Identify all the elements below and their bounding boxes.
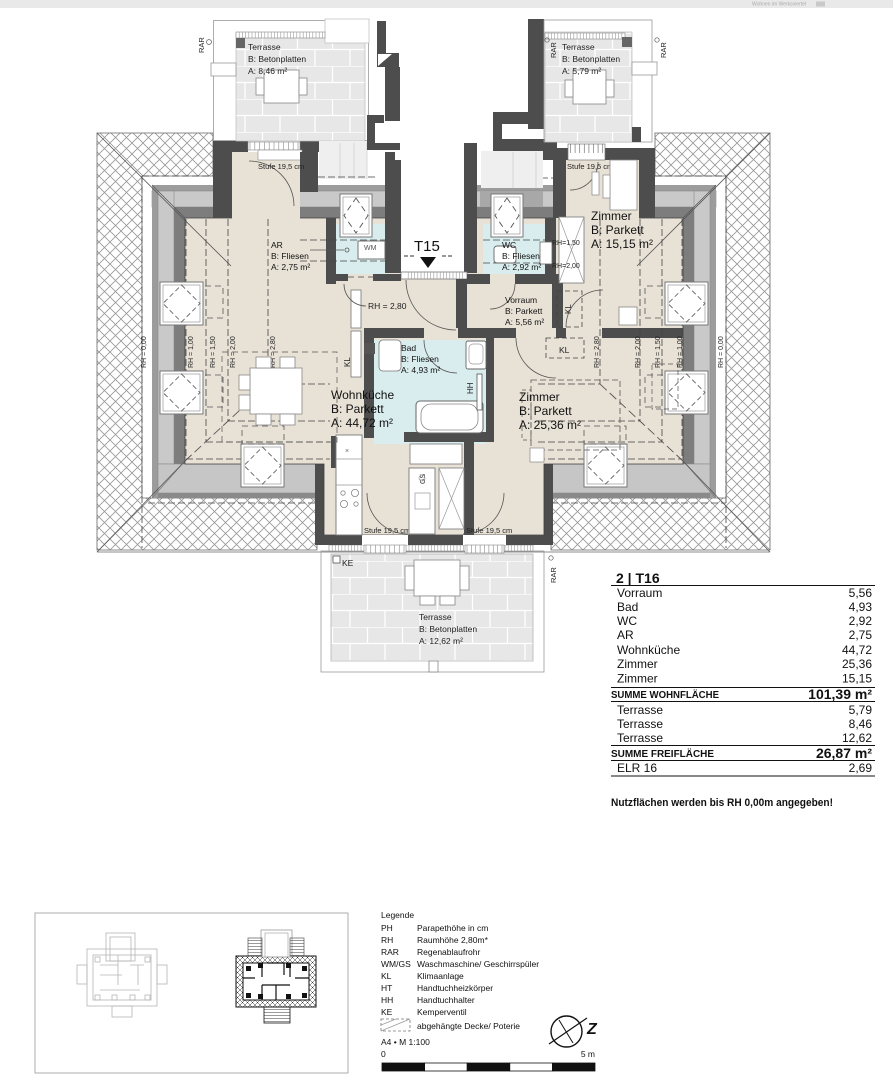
svg-text:RH = 0,00: RH = 0,00 <box>141 336 148 368</box>
svg-text:RH = 2,00: RH = 2,00 <box>635 336 642 368</box>
svg-text:Raumhöhe 2,80m*: Raumhöhe 2,80m* <box>417 935 489 945</box>
svg-text:HT: HT <box>381 983 392 993</box>
svg-text:Terrasse: Terrasse <box>562 42 595 52</box>
svg-text:Bad: Bad <box>617 600 638 614</box>
svg-text:Terrasse: Terrasse <box>617 731 663 745</box>
svg-text:Zimmer: Zimmer <box>519 390 560 404</box>
svg-text:WM: WM <box>364 245 377 252</box>
svg-text:A: 25,36 m²: A: 25,36 m² <box>519 418 581 432</box>
svg-text:A: 44,72 m²: A: 44,72 m² <box>331 416 393 430</box>
svg-text:B: Betonplatten: B: Betonplatten <box>562 54 620 64</box>
svg-text:44,72: 44,72 <box>842 643 872 657</box>
svg-text:KE: KE <box>381 1007 393 1017</box>
svg-text:Kemperventil: Kemperventil <box>417 1007 467 1017</box>
svg-text:2,92: 2,92 <box>849 614 873 628</box>
svg-text:KL: KL <box>381 971 392 981</box>
svg-text:Stufe 19,5 cm: Stufe 19,5 cm <box>567 162 613 171</box>
svg-text:2 | T16: 2 | T16 <box>616 570 660 586</box>
svg-text:RH = 1,50: RH = 1,50 <box>655 336 662 368</box>
svg-text:Waschmaschine/ Geschirrspüler: Waschmaschine/ Geschirrspüler <box>417 959 539 969</box>
svg-text:Terrasse: Terrasse <box>617 703 663 717</box>
svg-text:8,46: 8,46 <box>849 717 873 731</box>
svg-text:2,69: 2,69 <box>849 761 873 775</box>
svg-text:RH=2,00: RH=2,00 <box>552 263 580 270</box>
svg-text:RAR: RAR <box>659 42 668 58</box>
svg-text:5 m: 5 m <box>581 1049 595 1059</box>
svg-text:SUMME WOHNFLÄCHE: SUMME WOHNFLÄCHE <box>611 688 719 701</box>
svg-text:101,39 m²: 101,39 m² <box>808 686 872 702</box>
svg-text:Zimmer: Zimmer <box>617 672 658 686</box>
svg-text:15,15: 15,15 <box>842 672 872 686</box>
svg-text:RH = 2,80: RH = 2,80 <box>368 301 407 311</box>
svg-text:B: Parkett: B: Parkett <box>591 223 644 237</box>
svg-text:Klimaanlage: Klimaanlage <box>417 971 464 981</box>
svg-text:RH = 0,00: RH = 0,00 <box>718 336 725 368</box>
svg-text:KL: KL <box>343 357 352 367</box>
svg-text:Bad: Bad <box>401 343 416 353</box>
svg-text:WC: WC <box>502 240 516 250</box>
svg-text:RH = 2,80: RH = 2,80 <box>594 336 601 368</box>
svg-text:Terrasse: Terrasse <box>617 717 663 731</box>
svg-text:WC: WC <box>617 614 637 628</box>
svg-text:AR: AR <box>617 628 634 642</box>
svg-text:5,56: 5,56 <box>849 586 873 600</box>
svg-text:Stufe 19,5 cm: Stufe 19,5 cm <box>258 162 304 171</box>
svg-text:B: Parkett: B: Parkett <box>519 404 572 418</box>
svg-text:Wohnen im Werksviertel: Wohnen im Werksviertel <box>752 2 806 8</box>
svg-text:5,79: 5,79 <box>849 703 873 717</box>
svg-text:RH=1,50: RH=1,50 <box>552 240 580 247</box>
svg-text:RAR: RAR <box>549 567 558 583</box>
svg-text:ELR 16: ELR 16 <box>617 761 657 775</box>
svg-text:Z: Z <box>586 1021 598 1038</box>
svg-text:12,62: 12,62 <box>842 731 872 745</box>
svg-text:A: 12,62 m²: A: 12,62 m² <box>419 636 463 646</box>
svg-text:RAR: RAR <box>197 37 206 53</box>
svg-text:HH: HH <box>466 382 475 394</box>
svg-text:A: 5,79 m²: A: 5,79 m² <box>562 66 601 76</box>
svg-text:RAR: RAR <box>381 947 399 957</box>
svg-text:0: 0 <box>381 1049 386 1059</box>
svg-text:B: Fliesen: B: Fliesen <box>271 251 309 261</box>
svg-text:Vorraum: Vorraum <box>505 295 537 305</box>
svg-text:2,75: 2,75 <box>849 628 873 642</box>
svg-text:WM/GS: WM/GS <box>381 959 411 969</box>
svg-text:A4 • M 1:100: A4 • M 1:100 <box>381 1037 430 1047</box>
svg-text:Regenablaufrohr: Regenablaufrohr <box>417 947 480 957</box>
svg-text:Handtuchheizkörper: Handtuchheizkörper <box>417 983 493 993</box>
svg-text:Zimmer: Zimmer <box>591 209 632 223</box>
svg-text:B: Betonplatten: B: Betonplatten <box>248 54 306 64</box>
svg-text:Nutzflächen werden bis RH 0,00: Nutzflächen werden bis RH 0,00m angegebe… <box>611 797 833 809</box>
svg-text:RH: RH <box>381 935 393 945</box>
svg-text:Wohnküche: Wohnküche <box>331 388 394 402</box>
svg-text:Terrasse: Terrasse <box>248 42 281 52</box>
svg-text:Stufe 19,5 cm: Stufe 19,5 cm <box>466 526 512 535</box>
svg-text:T15: T15 <box>414 238 440 255</box>
svg-text:B: Parkett: B: Parkett <box>331 402 384 416</box>
svg-text:Terrasse: Terrasse <box>419 612 452 622</box>
svg-text:RAR: RAR <box>549 42 558 58</box>
svg-text:Parapethöhe in cm: Parapethöhe in cm <box>417 923 488 933</box>
svg-text:RH = 1,00: RH = 1,00 <box>677 336 684 368</box>
svg-text:RH = 1,50: RH = 1,50 <box>210 336 217 368</box>
svg-text:Wohnküche: Wohnküche <box>617 643 680 657</box>
svg-text:AR: AR <box>271 240 283 250</box>
svg-text:Zimmer: Zimmer <box>617 657 658 671</box>
svg-text:A: 4,93 m²: A: 4,93 m² <box>401 365 440 375</box>
svg-text:KE: KE <box>342 558 354 568</box>
svg-text:A: 2,75 m²: A: 2,75 m² <box>271 262 310 272</box>
svg-text:KL: KL <box>559 345 570 355</box>
svg-text:B: Betonplatten: B: Betonplatten <box>419 624 477 634</box>
svg-text:Legende: Legende <box>381 910 414 920</box>
svg-text:Vorraum: Vorraum <box>617 586 662 600</box>
svg-text:B: Fliesen: B: Fliesen <box>401 354 439 364</box>
svg-text:A: 15,15 m²: A: 15,15 m² <box>591 237 653 251</box>
svg-text:SUMME FREIFLÄCHE: SUMME FREIFLÄCHE <box>611 747 714 760</box>
svg-text:4,93: 4,93 <box>849 600 873 614</box>
svg-text:B: Fliesen: B: Fliesen <box>502 251 540 261</box>
svg-text:abgehängte Decke/ Poterie: abgehängte Decke/ Poterie <box>417 1021 520 1031</box>
svg-text:25,36: 25,36 <box>842 657 872 671</box>
svg-text:B: Parkett: B: Parkett <box>505 306 543 316</box>
svg-text:Handtuchhalter: Handtuchhalter <box>417 995 475 1005</box>
svg-text:A: 2,92 m²: A: 2,92 m² <box>502 262 541 272</box>
svg-text:RH = 1,00: RH = 1,00 <box>188 336 195 368</box>
svg-text:A: 8,46 m²: A: 8,46 m² <box>248 66 287 76</box>
svg-text:26,87 m²: 26,87 m² <box>816 745 872 761</box>
svg-text:HH: HH <box>381 995 393 1005</box>
svg-text:A: 5,56 m²: A: 5,56 m² <box>505 317 544 327</box>
svg-text:PH: PH <box>381 923 393 933</box>
svg-text:×: × <box>345 448 349 455</box>
